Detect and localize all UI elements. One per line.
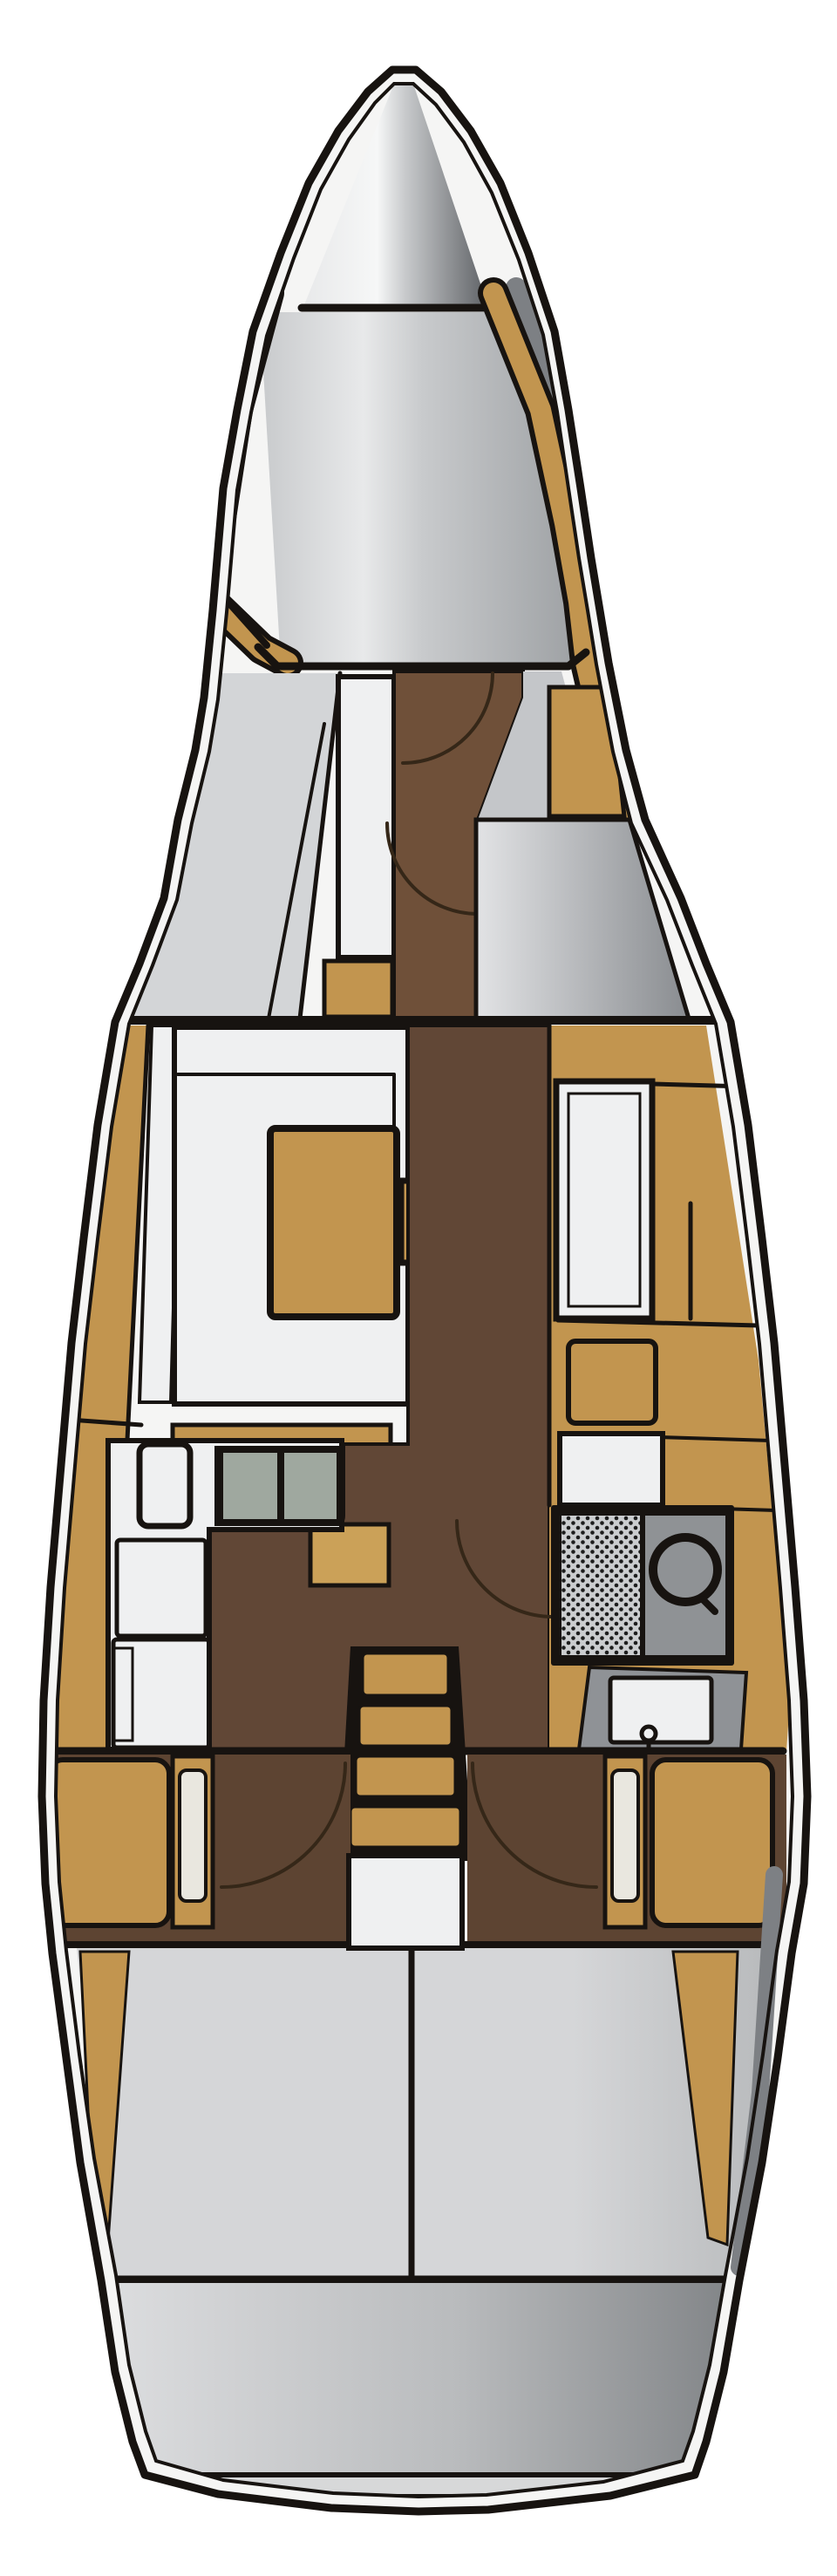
companionway-step	[363, 1653, 448, 1695]
nav-station	[560, 1434, 663, 1505]
nav-seat	[568, 1341, 656, 1423]
cockpit	[77, 1948, 766, 2281]
galley-sink	[223, 1453, 277, 1519]
galley-top-box	[139, 1444, 190, 1526]
aft-cabin-port-berth	[49, 1760, 169, 1925]
aft-cabin-starboard-berth	[652, 1760, 772, 1925]
galley-step-platform	[310, 1524, 389, 1585]
forward-tan-locker	[324, 961, 392, 1017]
aft-cabin-starboard-cushion	[612, 1770, 638, 1901]
stove-hatch-icon	[561, 1516, 640, 1655]
galley-sink	[284, 1453, 337, 1519]
companionway-step	[356, 1756, 455, 1796]
starboard-cabinet	[556, 1081, 652, 1319]
transom	[108, 2283, 745, 2473]
companionway-step	[350, 1807, 460, 1847]
companionway-step	[359, 1706, 452, 1746]
aft-cabin-port-cushion	[180, 1770, 206, 1901]
salon-table	[270, 1128, 397, 1317]
engine-hatch	[610, 1678, 711, 1742]
companionway-landing	[349, 1856, 462, 1948]
forward-locker	[338, 677, 394, 957]
sailboat-floorplan	[0, 0, 837, 2576]
